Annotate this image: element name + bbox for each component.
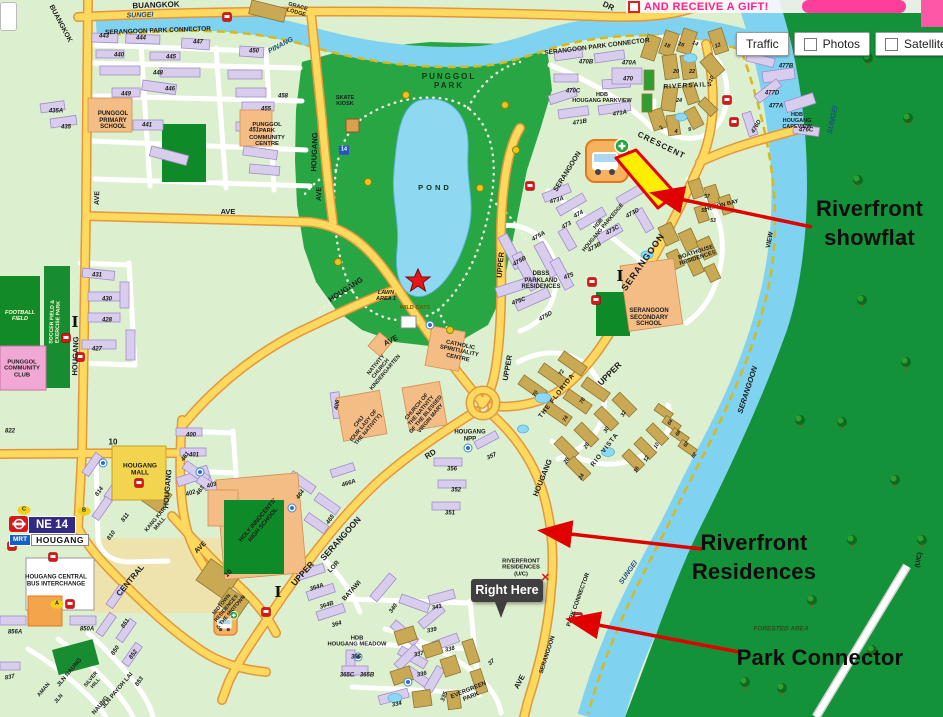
- bus-stop-icon: [76, 353, 85, 362]
- annotation-riverfront-showflat: Riverfront showflat: [796, 194, 943, 252]
- ad-banner-text: AND RECEIVE A GIFT!: [644, 1, 769, 13]
- fitness-station-icon: [513, 147, 520, 154]
- map-canvas[interactable]: III BUANGKOKBUANGKOKDRSUNGEISERANGOON PA…: [0, 0, 943, 717]
- marker-pointer-tail: [495, 602, 507, 618]
- mrt-station-badge: NE 14 MRT HOUGANG: [9, 516, 89, 546]
- mrt-mode-tag: MRT: [9, 534, 31, 546]
- overpass-icon: I: [274, 583, 281, 601]
- overpass-icon: I: [71, 313, 78, 331]
- fitness-station-icon: [335, 259, 342, 266]
- bus-stop-icon: [66, 600, 75, 609]
- satellite-label: Satellite: [904, 37, 943, 51]
- fitness-station-icon: [502, 102, 509, 109]
- overpass-icon: I: [616, 267, 623, 285]
- info-icon: [196, 468, 204, 476]
- info-icon: [426, 321, 434, 329]
- gift-ad-icon: [628, 1, 640, 13]
- bus-stop-icon: [262, 608, 271, 617]
- bus-stop-icon: [135, 479, 144, 488]
- info-icon: [464, 444, 472, 452]
- playground-icon: [346, 119, 359, 132]
- school-field: [224, 500, 284, 574]
- traffic-button[interactable]: Traffic: [736, 32, 789, 56]
- mrt-logo-icon: [9, 516, 28, 532]
- fitness-station-icon: [447, 327, 454, 334]
- map-layer-controls: Traffic Photos Satellite: [736, 32, 943, 56]
- park-sign-icon: [401, 316, 416, 328]
- satellite-checkbox[interactable]: [885, 38, 898, 51]
- ad-graphic-right: [921, 0, 943, 27]
- bus-stop-icon: [588, 278, 597, 287]
- bus-stop-icon: [49, 553, 58, 562]
- info-icon: [99, 459, 107, 467]
- annotation-park-connector: Park Connector: [730, 643, 910, 672]
- fitness-station-icon: [403, 92, 410, 99]
- mrt-station-name: HOUGANG: [31, 534, 89, 546]
- mrt-line-code: NE 14: [28, 516, 76, 534]
- ad-graphic: [802, 0, 906, 13]
- bus-interchange-icon-small: [214, 611, 238, 635]
- right-here-label: Right Here: [475, 583, 538, 597]
- photos-label: Photos: [823, 37, 860, 51]
- base-map: III: [0, 0, 943, 717]
- fitness-station-icon: [365, 179, 372, 186]
- photos-checkbox[interactable]: [804, 38, 817, 51]
- bus-stop-icon: [592, 296, 601, 305]
- close-icon[interactable]: ✕: [541, 573, 550, 584]
- bus-stop-icon: [526, 182, 535, 191]
- bus-stop-icon: [223, 13, 232, 22]
- bus-stop-icon: [723, 96, 732, 105]
- bus-stop-icon: [574, 613, 583, 622]
- info-icon: [354, 653, 362, 661]
- photos-toggle[interactable]: Photos: [794, 32, 870, 56]
- right-here-marker[interactable]: Right Here ✕: [471, 579, 543, 602]
- info-icon: [404, 678, 412, 686]
- bus-stop-icon: [730, 118, 739, 127]
- satellite-toggle[interactable]: Satellite: [875, 32, 943, 56]
- info-icon: [288, 504, 296, 512]
- annotation-riverfront-residences: Riverfront Residences: [684, 528, 824, 586]
- map-control-sliver[interactable]: [0, 2, 17, 31]
- bus-stop-icon: [62, 334, 71, 343]
- fitness-station-icon: [477, 185, 484, 192]
